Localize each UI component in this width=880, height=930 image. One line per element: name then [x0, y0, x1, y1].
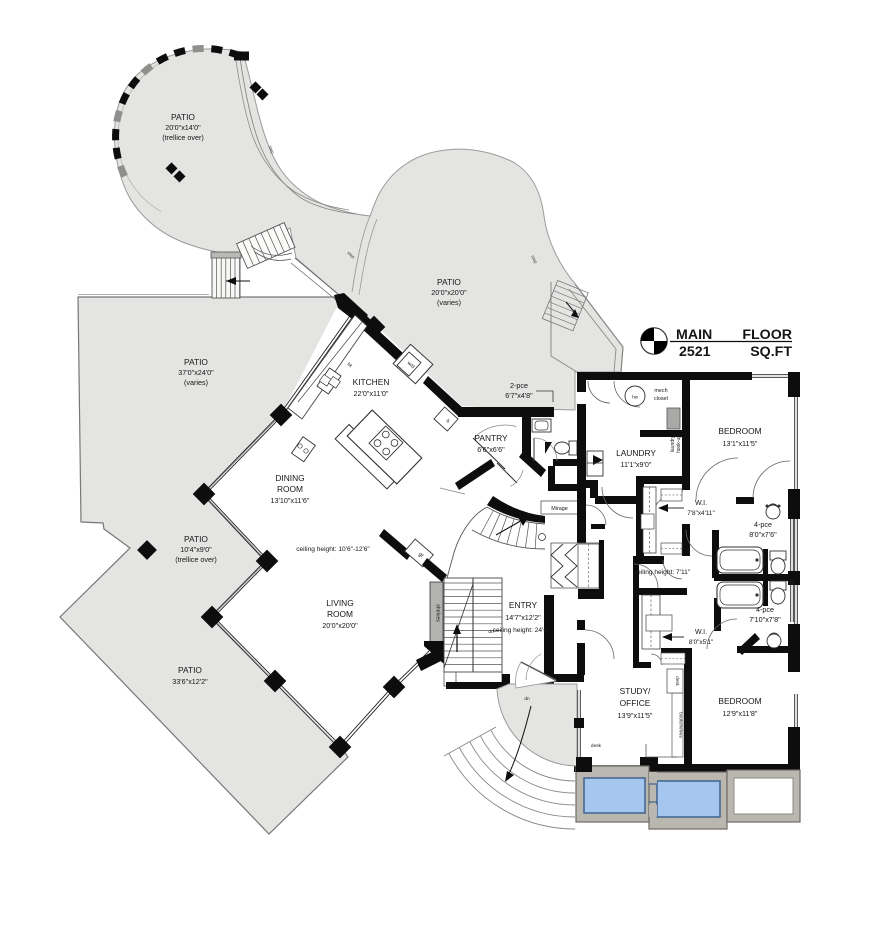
svg-text:BEDROOM: BEDROOM: [718, 426, 761, 436]
svg-text:20'0"x20'0": 20'0"x20'0": [431, 288, 467, 297]
svg-text:33'6"x12'2": 33'6"x12'2": [172, 677, 208, 686]
svg-text:2521: 2521: [679, 344, 711, 360]
svg-text:LIVING: LIVING: [326, 598, 353, 608]
svg-text:2-pce: 2-pce: [510, 381, 528, 390]
svg-text:6'7"x4'8": 6'7"x4'8": [505, 391, 533, 400]
svg-text:SQ.FT: SQ.FT: [750, 344, 792, 360]
svg-text:22'0"x11'0": 22'0"x11'0": [354, 389, 389, 398]
svg-text:ceiling height: 10'6"-12'6": ceiling height: 10'6"-12'6": [296, 546, 370, 553]
svg-text:KITCHEN: KITCHEN: [353, 377, 390, 387]
svg-text:7'8"x4'11": 7'8"x4'11": [687, 510, 714, 517]
svg-text:(varies): (varies): [437, 298, 461, 307]
svg-text:closet: closet: [654, 396, 669, 402]
svg-text:12'9"x11'8": 12'9"x11'8": [723, 709, 758, 718]
svg-text:mech: mech: [654, 388, 667, 394]
svg-text:10'4"x9'0": 10'4"x9'0": [180, 545, 212, 554]
svg-text:ceiling height: 24'6": ceiling height: 24'6": [493, 627, 550, 634]
svg-text:W.I.: W.I.: [695, 500, 707, 507]
svg-text:13'9"x11'5": 13'9"x11'5": [618, 711, 653, 720]
svg-text:20'0"x14'0": 20'0"x14'0": [165, 123, 201, 132]
svg-text:MAIN: MAIN: [676, 327, 712, 343]
svg-text:hook-up: hook-up: [676, 435, 682, 453]
svg-text:PANTRY: PANTRY: [474, 433, 508, 443]
svg-text:13'10"x11'6": 13'10"x11'6": [271, 496, 310, 505]
svg-text:11'1"x9'0": 11'1"x9'0": [621, 460, 652, 469]
svg-text:bookshelves: bookshelves: [679, 712, 684, 738]
svg-text:(trellice over): (trellice over): [175, 555, 217, 564]
svg-text:desk: desk: [675, 676, 680, 686]
svg-text:ENTRY: ENTRY: [509, 600, 538, 610]
svg-text:PATIO: PATIO: [437, 277, 461, 287]
svg-text:ROOM: ROOM: [327, 609, 353, 619]
svg-text:dn: dn: [524, 696, 530, 702]
svg-text:Mirage: Mirage: [551, 506, 567, 512]
svg-text:(trellice over): (trellice over): [162, 133, 204, 142]
svg-text:ROOM: ROOM: [277, 484, 303, 494]
svg-text:6'6"x6'6": 6'6"x6'6": [477, 445, 505, 454]
svg-text:ceiling height: 7'11": ceiling height: 7'11": [634, 569, 691, 576]
svg-text:LAUNDRY: LAUNDRY: [616, 448, 656, 458]
svg-text:4-pce: 4-pce: [756, 605, 774, 614]
svg-text:7'10"x7'8": 7'10"x7'8": [749, 615, 781, 624]
svg-text:desk: desk: [591, 743, 602, 749]
svg-text:8'0"x7'6": 8'0"x7'6": [749, 530, 777, 539]
svg-text:PATIO: PATIO: [171, 112, 195, 122]
svg-text:OFFICE: OFFICE: [620, 698, 651, 708]
svg-text:8'0"x5'1": 8'0"x5'1": [689, 639, 713, 646]
svg-text:37'0"x24'0": 37'0"x24'0": [178, 368, 214, 377]
svg-text:(varies): (varies): [184, 378, 208, 387]
svg-text:PATIO: PATIO: [178, 665, 202, 675]
svg-text:W.I.: W.I.: [695, 629, 707, 636]
svg-text:STUDY/: STUDY/: [620, 686, 651, 696]
svg-text:DINING: DINING: [275, 473, 304, 483]
svg-text:4-pce: 4-pce: [754, 520, 772, 529]
svg-text:BEDROOM: BEDROOM: [718, 696, 761, 706]
svg-text:FLOOR: FLOOR: [742, 327, 792, 343]
svg-text:14'7"x12'2": 14'7"x12'2": [505, 613, 541, 622]
svg-text:PATIO: PATIO: [184, 357, 208, 367]
svg-text:hw: hw: [632, 395, 639, 400]
svg-text:20'0"x20'0": 20'0"x20'0": [322, 621, 358, 630]
svg-text:shelves: shelves: [435, 604, 441, 622]
svg-text:13'1"x11'5": 13'1"x11'5": [723, 439, 758, 448]
svg-text:PATIO: PATIO: [184, 534, 208, 544]
